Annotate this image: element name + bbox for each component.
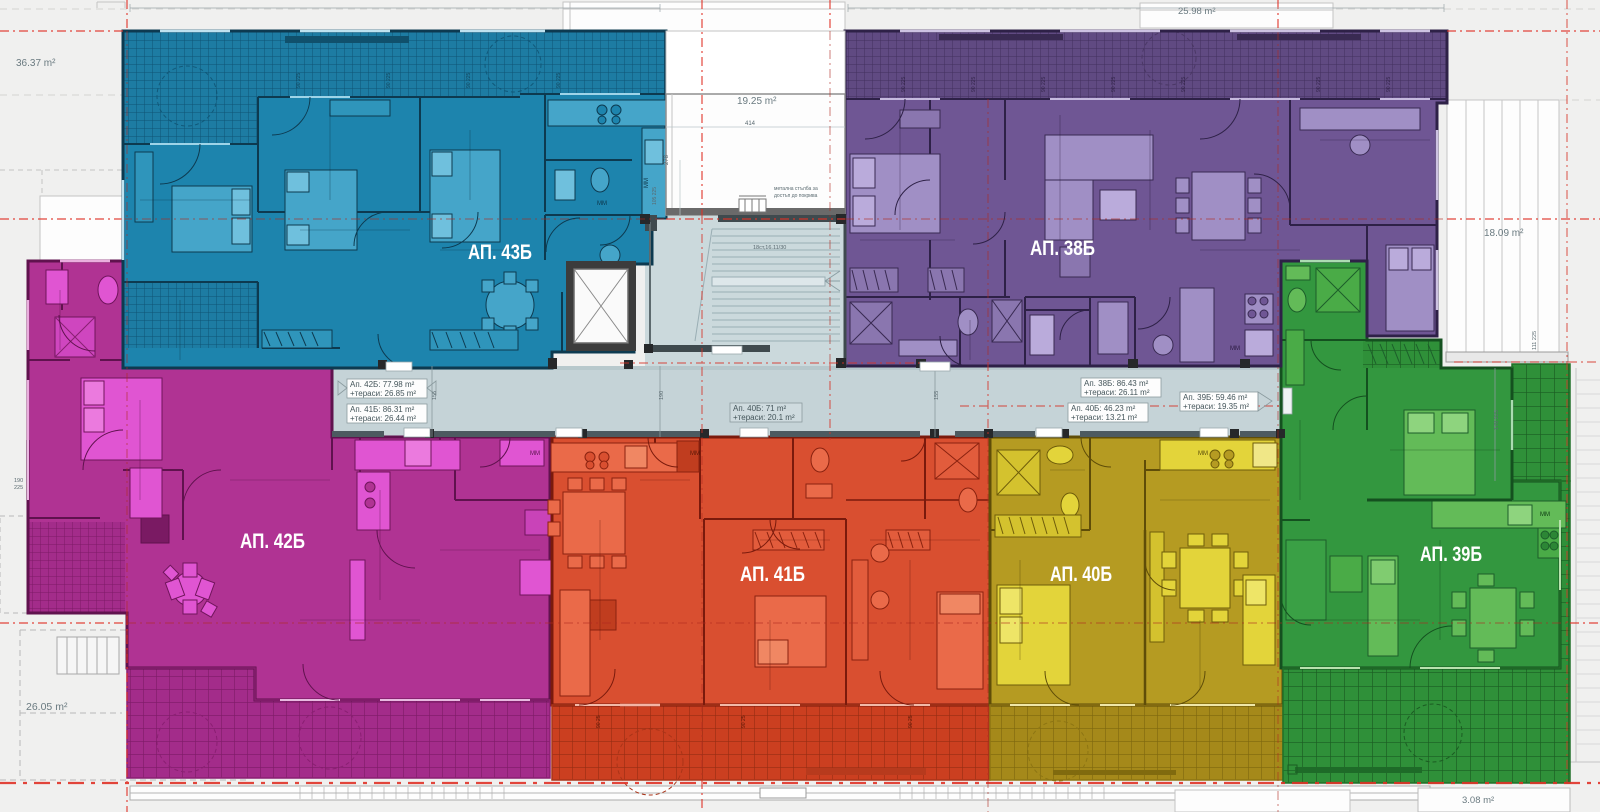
svg-text:АП. 41Б: АП. 41Б xyxy=(740,563,805,586)
svg-text:достъп до покрива: достъп до покрива xyxy=(774,193,818,199)
svg-text:+тераси: 26.11 m²: +тераси: 26.11 m² xyxy=(1084,388,1150,397)
svg-text:18.09 m²: 18.09 m² xyxy=(1484,228,1524,239)
svg-text:АП. 38Б: АП. 38Б xyxy=(1030,237,1095,260)
svg-text:90 25: 90 25 xyxy=(908,715,914,728)
svg-text:АП. 39Б: АП. 39Б xyxy=(1420,543,1482,566)
svg-text:+тераси: 20.1 m²: +тераси: 20.1 m² xyxy=(733,413,795,422)
svg-text:90 25: 90 25 xyxy=(596,715,602,728)
svg-text:25.98 m²: 25.98 m² xyxy=(1178,6,1216,17)
svg-text:414: 414 xyxy=(745,121,756,127)
svg-text:3.08 m²: 3.08 m² xyxy=(1462,795,1494,806)
svg-text:90 225: 90 225 xyxy=(386,72,392,88)
svg-text:MM: MM xyxy=(1540,512,1550,518)
svg-text:26.05 m²: 26.05 m² xyxy=(26,701,68,713)
svg-text:36.37 m²: 36.37 m² xyxy=(16,58,56,69)
svg-text:111 225: 111 225 xyxy=(1532,331,1538,350)
svg-text:MM: MM xyxy=(644,178,650,188)
svg-text:АП. 40Б: АП. 40Б xyxy=(1050,563,1112,586)
svg-text:105 225: 105 225 xyxy=(652,187,658,205)
svg-text:90 25: 90 25 xyxy=(741,715,747,728)
svg-text:155: 155 xyxy=(432,391,438,400)
svg-text:90 225: 90 225 xyxy=(1316,76,1322,92)
svg-text:Ап. 39Б: 59.46 m²: Ап. 39Б: 59.46 m² xyxy=(1183,393,1248,402)
svg-text:90 225: 90 225 xyxy=(296,72,302,88)
svg-text:MM: MM xyxy=(1230,346,1240,352)
svg-text:АП. 43Б: АП. 43Б xyxy=(468,241,532,264)
svg-text:90 225: 90 225 xyxy=(901,76,907,92)
svg-text:АП. 42Б: АП. 42Б xyxy=(240,530,305,553)
svg-text:225: 225 xyxy=(14,485,23,491)
svg-text:+тераси: 26.44 m²: +тераси: 26.44 m² xyxy=(350,414,416,423)
svg-text:+тераси: 13.21 m²: +тераси: 13.21 m² xyxy=(1071,413,1137,422)
svg-text:Ап. 40Б: 46.23 m²: Ап. 40Б: 46.23 m² xyxy=(1071,404,1136,413)
svg-text:90 225: 90 225 xyxy=(971,76,977,92)
svg-text:MM: MM xyxy=(1198,451,1208,457)
svg-text:155: 155 xyxy=(934,391,940,400)
svg-text:метална стълба за: метална стълба за xyxy=(774,186,818,192)
svg-text:190: 190 xyxy=(14,478,23,484)
svg-text:90 225: 90 225 xyxy=(1181,76,1187,92)
svg-text:Ап. 42Б: 77.98 m²: Ап. 42Б: 77.98 m² xyxy=(350,380,415,389)
svg-text:90 225: 90 225 xyxy=(556,72,562,88)
svg-text:MM: MM xyxy=(690,451,700,457)
svg-text:+тераси: 26.85 m²: +тераси: 26.85 m² xyxy=(350,389,416,398)
svg-text:190: 190 xyxy=(659,391,665,400)
svg-text:19.25 m²: 19.25 m² xyxy=(737,96,777,107)
svg-text:90 225: 90 225 xyxy=(466,72,472,88)
svg-text:278: 278 xyxy=(664,154,670,165)
svg-text:Ап. 40Б: 71 m²: Ап. 40Б: 71 m² xyxy=(733,404,786,413)
svg-text:MM: MM xyxy=(597,201,607,207)
svg-text:90 225: 90 225 xyxy=(1041,76,1047,92)
svg-text:Ап. 41Б: 86.31 m²: Ап. 41Б: 86.31 m² xyxy=(350,405,415,414)
svg-text:Ап. 38Б: 86.43 m²: Ап. 38Б: 86.43 m² xyxy=(1084,379,1149,388)
svg-text:170 225: 170 225 xyxy=(1494,410,1500,430)
svg-text:+тераси: 19.35 m²: +тераси: 19.35 m² xyxy=(1183,402,1249,411)
svg-text:MM: MM xyxy=(530,451,540,457)
svg-text:90 225: 90 225 xyxy=(1111,76,1117,92)
svg-text:90 225: 90 225 xyxy=(1386,76,1392,92)
svg-text:18ст,16.11/30: 18ст,16.11/30 xyxy=(753,245,786,251)
